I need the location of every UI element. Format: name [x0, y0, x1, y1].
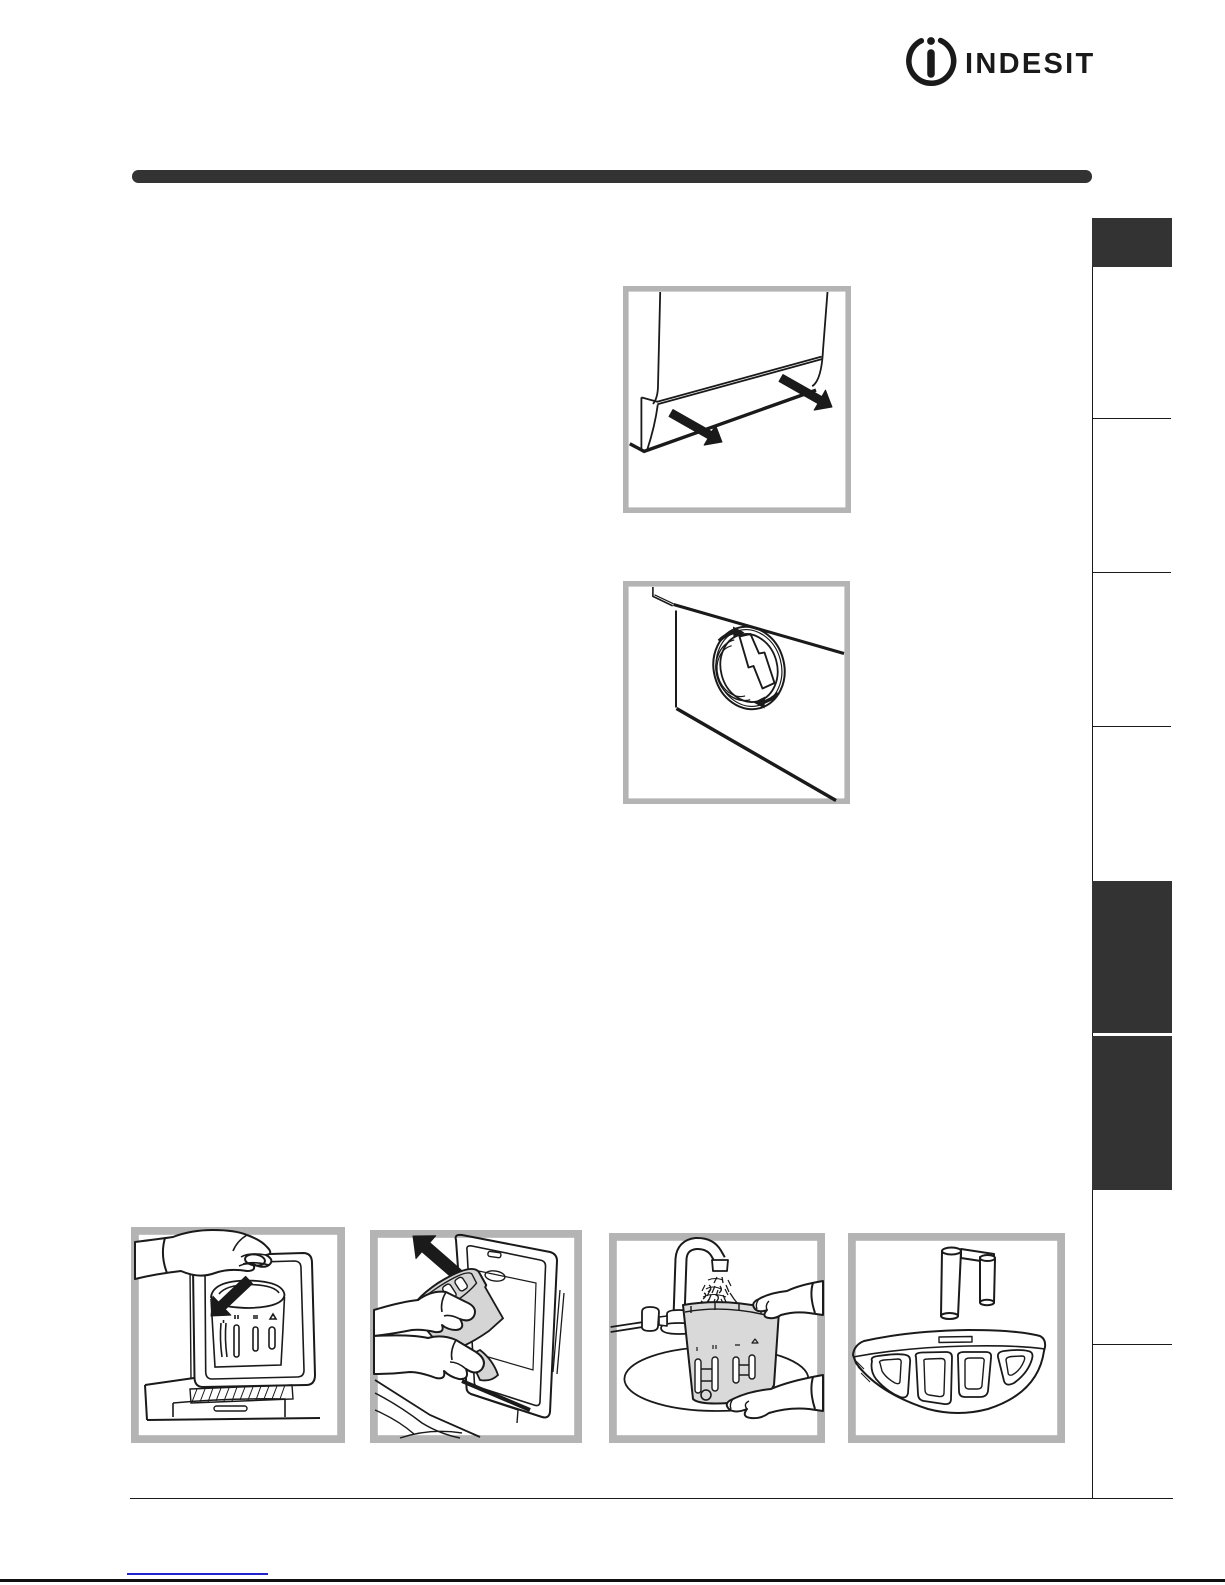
svg-text:INDESIT: INDESIT [965, 48, 1096, 80]
